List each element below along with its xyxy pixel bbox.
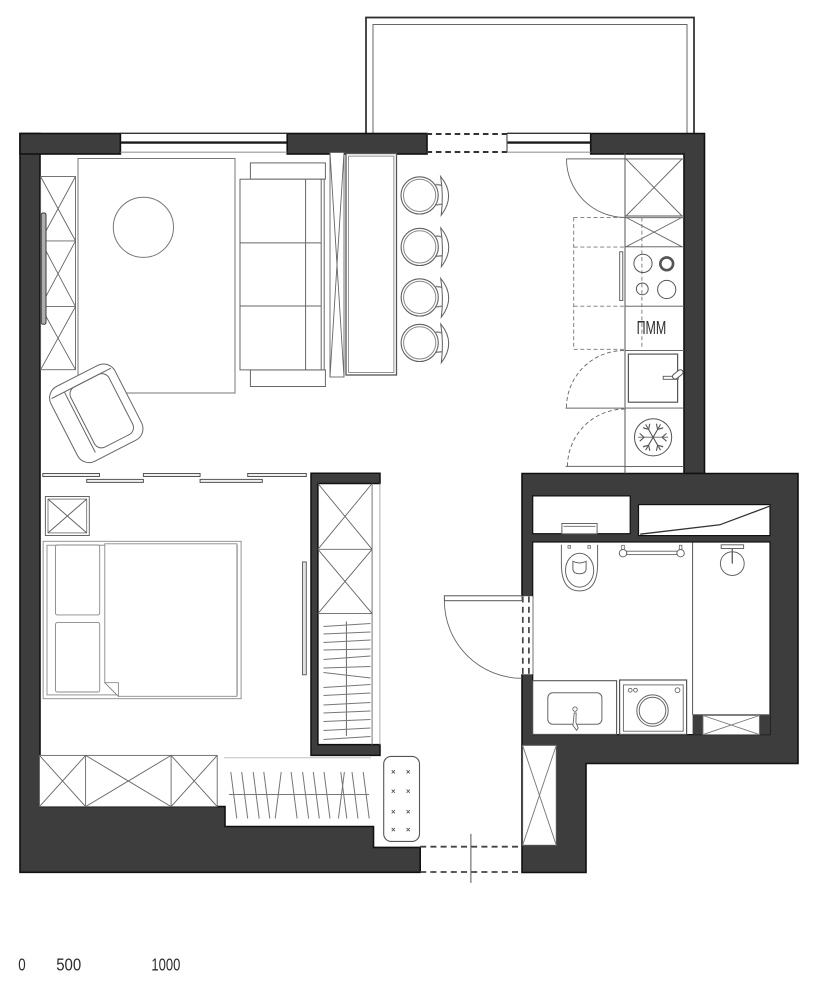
svg-text:1000: 1000	[151, 955, 180, 975]
svg-text:500: 500	[56, 955, 81, 975]
svg-text:ПMM: ПMM	[637, 317, 667, 338]
svg-text:0: 0	[18, 955, 26, 975]
